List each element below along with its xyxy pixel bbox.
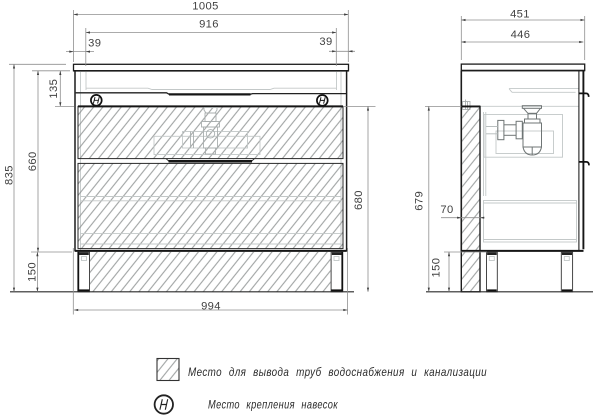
svg-text:680: 680	[353, 190, 365, 210]
svg-text:994: 994	[201, 300, 221, 312]
svg-text:135: 135	[48, 79, 60, 99]
svg-text:660: 660	[27, 151, 39, 171]
svg-text:Место для вывода труб водоснаб: Место для вывода труб водоснабжения и ка…	[188, 365, 487, 379]
svg-text:916: 916	[199, 18, 219, 30]
svg-text:70: 70	[440, 204, 453, 216]
svg-text:39: 39	[88, 38, 101, 50]
svg-text:1005: 1005	[192, 1, 219, 13]
svg-text:Место крепления навесок: Место крепления навесок	[208, 397, 339, 411]
svg-text:150: 150	[26, 262, 38, 282]
svg-text:679: 679	[414, 191, 426, 211]
svg-text:446: 446	[511, 29, 531, 41]
svg-text:39: 39	[319, 36, 332, 48]
svg-text:451: 451	[510, 9, 530, 21]
svg-text:835: 835	[4, 165, 16, 185]
svg-text:150: 150	[431, 258, 443, 278]
